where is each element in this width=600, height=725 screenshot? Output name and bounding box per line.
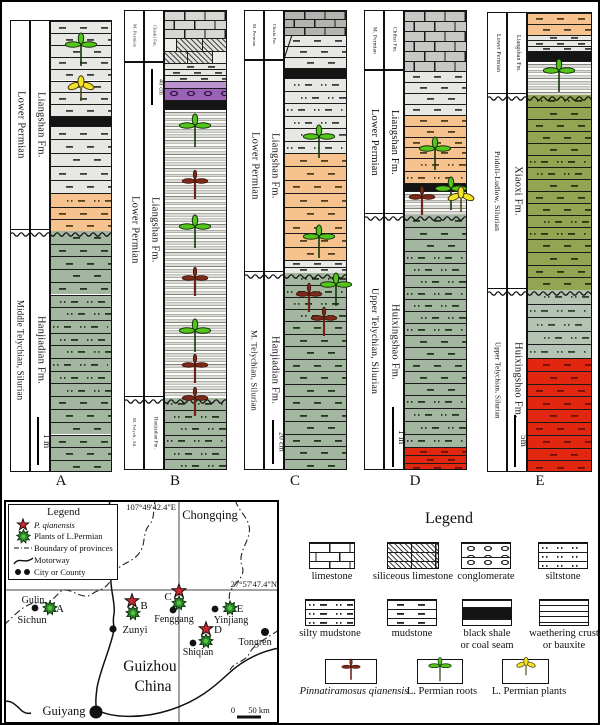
fm-label: Huixingshao Fm.	[389, 304, 400, 380]
layer-graydots	[285, 78, 346, 91]
city-label: Zunyi	[122, 625, 147, 636]
strat-section-age: Lower Permian	[487, 12, 507, 94]
lithology-legend-title: Legend	[409, 510, 489, 528]
legend-layer-siltW	[539, 561, 587, 569]
layer-green	[285, 321, 346, 334]
layer-red	[528, 371, 591, 384]
layer-gray	[51, 180, 111, 193]
layer-red	[528, 396, 591, 409]
layer-graydots	[285, 116, 346, 129]
layer-green	[285, 334, 346, 347]
layer-ruled	[165, 109, 226, 398]
scale-bar	[37, 417, 39, 465]
layer-olive	[528, 131, 591, 143]
legend-layer-siltW	[539, 543, 587, 552]
permian-root-icon	[427, 656, 453, 683]
siliceous-cell	[177, 39, 203, 51]
layer-gray	[51, 21, 111, 33]
age-label: M. Permian	[252, 24, 256, 46]
scale-bar	[514, 415, 516, 467]
strat-section-age: M. Permian	[364, 10, 384, 70]
longitude-label: 107°49'42.4"E	[126, 502, 176, 512]
scale-label-text: 1 m	[397, 430, 406, 444]
legend-layer-whiteL	[463, 619, 511, 626]
layer-green	[285, 459, 346, 471]
layer-green	[51, 447, 111, 460]
layer-red	[405, 455, 466, 463]
layer-greendots	[51, 383, 111, 396]
layer-greendots	[51, 371, 111, 384]
fm-label: Hanjiadian Fm.	[152, 417, 157, 449]
column-letter-D: D	[405, 473, 425, 491]
legend-swatch-silty	[305, 599, 355, 626]
city-label: Tongren	[238, 637, 271, 648]
layer-red	[528, 448, 591, 461]
litho-column-B	[164, 10, 227, 470]
layer-red	[528, 384, 591, 397]
litho-column-C	[284, 10, 347, 470]
fm-label: Chishi Fm.	[272, 24, 276, 45]
layer-black	[165, 100, 226, 109]
layer-limeD	[285, 27, 346, 35]
scale-label: 5m	[517, 415, 530, 467]
layer-green	[405, 359, 466, 371]
layer-greendots	[405, 299, 466, 311]
legend-layer-whiteL	[540, 622, 588, 626]
layer-green	[285, 434, 346, 447]
layer-green	[51, 244, 111, 257]
legend-symbol-plant	[513, 656, 539, 687]
layer-greendots	[405, 275, 466, 287]
layer-orange	[51, 207, 111, 219]
layer-conglo	[165, 88, 226, 100]
layer-red	[405, 463, 466, 470]
layer-orange	[405, 115, 466, 126]
city-label: Guiyang	[42, 704, 86, 718]
legend-layer-silicW	[388, 561, 438, 569]
layer-green	[51, 396, 111, 409]
map-legend-item: Boundary of provinces	[12, 542, 115, 554]
layer-red	[528, 422, 591, 435]
legend-layer-siltymudW	[306, 600, 354, 609]
city-label: Shiqian	[183, 647, 214, 658]
layer-orange	[285, 166, 346, 179]
fm-label: Huixingshao Fm.	[512, 342, 523, 418]
city-dot	[170, 607, 177, 614]
layer-orange	[405, 147, 466, 158]
scale-label-text: 1 m	[42, 434, 51, 448]
strat-section-formation: Chihsi Fm.	[384, 10, 404, 70]
scale-bar	[272, 420, 274, 464]
strat-section-age: M. Telych., Sil.	[124, 397, 144, 470]
layer-orange	[285, 233, 346, 246]
layer-greendots	[405, 251, 466, 263]
age-label: M. Permian	[132, 24, 137, 47]
layer-red	[528, 358, 591, 371]
legend-label-line: siltstone	[501, 571, 600, 583]
layer-olive	[528, 277, 591, 290]
layer-siliceous-limestone	[165, 51, 226, 64]
strat-section-age: Lower Permian	[244, 60, 264, 272]
siliceous-cell	[165, 52, 188, 64]
city-dot	[261, 628, 269, 636]
layer-greendots	[51, 307, 111, 320]
layer-gray	[51, 81, 111, 93]
scale-label: 1 m	[40, 417, 53, 465]
fm-label: Liangshan Fm.	[389, 110, 399, 175]
layer-greendots	[405, 323, 466, 335]
strat-section-formation: Liangshan Fm.	[144, 62, 164, 397]
legend-symbol-box-plant	[502, 659, 549, 684]
map-region-label: Guizhou	[123, 658, 177, 675]
layer-limeM	[405, 61, 466, 71]
layer-black	[405, 183, 466, 191]
legend-swatch-conglomerate	[461, 542, 511, 569]
layer-greendots	[285, 273, 346, 285]
strat-section-age: Middle Telychian, Silurian	[10, 230, 30, 472]
strat-section-formation: Liangshan Fm.	[30, 20, 50, 230]
layer-graydots	[285, 141, 346, 154]
age-label: Lower Permian	[249, 132, 260, 200]
column-letter-A: A	[51, 473, 71, 491]
layer-limeL	[165, 29, 226, 38]
legend-layer-mudW	[388, 600, 436, 609]
strat-section-age: M. Permian	[124, 10, 144, 62]
layer-greendots	[405, 395, 466, 408]
layer-orange	[285, 193, 346, 206]
legend-swatch-siliceous	[387, 542, 439, 569]
legend-label-line: or bauxite	[502, 640, 600, 652]
layer-greendots	[405, 408, 466, 421]
legend-swatch-black	[462, 599, 512, 626]
layer-green	[405, 335, 466, 347]
legend-symbol-pq	[338, 656, 364, 687]
layer-red	[528, 409, 591, 422]
map-legend-items: P. qianensisPlants of L.PermianBoundary …	[12, 519, 115, 578]
pinnatiramosus-icon	[338, 656, 364, 683]
age-label: M. Telychian, Silurian	[250, 330, 259, 411]
layer-olivedots	[528, 227, 591, 239]
city-label: Gulin	[22, 595, 45, 606]
scale-label: 1 m	[395, 407, 408, 467]
layer-greendots	[165, 422, 226, 434]
layer-gray	[285, 35, 346, 46]
layer-greendots	[405, 263, 466, 275]
layer-greendots	[165, 410, 226, 422]
strat-section-formation: Liangshan Fm.	[264, 60, 284, 272]
layer-olivedots	[528, 95, 591, 107]
legend-swatch-siltstone	[538, 542, 588, 569]
layer-greendots	[51, 358, 111, 371]
layer-gray	[51, 45, 111, 57]
litho-column-D	[404, 10, 467, 470]
legend-layer-siltymudW	[306, 618, 354, 626]
layer-orange	[405, 126, 466, 137]
layer-green	[51, 422, 111, 435]
layer-gray	[405, 82, 466, 93]
layer-red	[528, 460, 591, 472]
motorway-icon	[12, 555, 34, 566]
layer-greendots	[285, 309, 346, 321]
legend-symbol-root	[427, 656, 453, 687]
map-scalebar-label: 50 km	[248, 705, 270, 715]
layer-orangedots	[405, 171, 466, 184]
legend-item-label: waethering crustor bauxite	[502, 628, 600, 654]
layer-greendots	[51, 333, 111, 346]
litho-column-E	[527, 12, 592, 472]
figure-root: Legend P. qianensisPlants of L.PermianBo…	[0, 0, 600, 725]
layer-purpleL	[165, 81, 226, 88]
site-label: A	[56, 603, 64, 615]
map-legend-box: Legend P. qianensisPlants of L.PermianBo…	[8, 504, 118, 580]
map-legend-item: Motorway	[12, 554, 115, 566]
siliceous-cell	[213, 52, 226, 64]
city-dot	[109, 625, 116, 632]
scale-bar	[151, 69, 153, 105]
map-region-label: China	[134, 678, 171, 695]
layer-black	[285, 68, 346, 78]
age-label: Lower Permian	[15, 91, 26, 159]
layer-olive	[528, 203, 591, 215]
fm-label: Hanjiadian Fm.	[269, 336, 280, 404]
layer-olivedots	[528, 155, 591, 167]
layer-green	[405, 239, 466, 251]
legend-layer-congloW	[462, 543, 510, 557]
layer-graygreen	[528, 344, 591, 358]
layer-limeM	[405, 11, 466, 21]
age-label: Upper Telychian, Silurian	[369, 288, 379, 394]
layer-limeL	[165, 20, 226, 29]
layer-graygreen	[528, 331, 591, 345]
layer-gray	[51, 57, 111, 69]
layer-gray	[285, 46, 346, 57]
city-label: Fenggang	[154, 614, 193, 625]
map-legend-item-label: P. qianensis	[34, 520, 75, 530]
layer-graygreen	[528, 317, 591, 331]
layer-gray	[51, 126, 111, 139]
scale-label-text: 5m	[519, 435, 528, 447]
site-plant-center	[48, 606, 52, 610]
scale-label-text: 40 cm	[157, 79, 163, 95]
scale-label: 40 cm	[154, 69, 167, 105]
legend-layer-limeW	[310, 543, 354, 552]
layer-limeM	[405, 31, 466, 41]
map-region-label: Chongqing	[182, 508, 238, 522]
layer-limeD	[285, 11, 346, 19]
legend-layer-siltW	[539, 552, 587, 561]
site-plant-center	[131, 611, 135, 615]
site-plant-center	[177, 601, 181, 605]
layer-siliceous-limestone	[165, 38, 226, 51]
layer-olive	[528, 239, 591, 252]
litho-column-A	[50, 20, 112, 472]
fm-label: Chishi Fm.	[152, 25, 157, 47]
layer-greendots	[165, 398, 226, 410]
layer-green	[285, 409, 346, 422]
strat-section-age: M. Permian	[244, 10, 264, 60]
layer-greendots	[165, 459, 226, 470]
layer-greendots	[51, 295, 111, 308]
layer-green	[285, 346, 346, 359]
map-legend-item-label: Motorway	[34, 555, 70, 565]
strat-section-formation: Hanjiadian Fm.	[144, 397, 164, 470]
map-scalebar-zero: 0	[231, 705, 235, 715]
plant-icon	[12, 529, 34, 544]
legend-layer-whiteL	[463, 600, 511, 607]
layer-gray	[51, 69, 111, 81]
map-legend-title: Legend	[12, 506, 115, 519]
layer-greendots	[285, 285, 346, 297]
legend-swatch-waethering	[539, 599, 589, 626]
layer-orange	[51, 219, 111, 231]
layer-graygreen	[528, 304, 591, 318]
layer-orange	[285, 180, 346, 193]
layer-greendots	[405, 287, 466, 299]
siliceous-cell	[188, 52, 212, 64]
fm-label: Chihsi Fm.	[391, 27, 396, 52]
layer-green	[285, 421, 346, 434]
permian-plant-icon	[513, 656, 539, 683]
layer-green	[285, 359, 346, 372]
strat-section-formation: Liangshan Fm.	[384, 70, 404, 214]
site-label: C	[164, 591, 171, 603]
layer-green	[51, 282, 111, 295]
map-legend-item-label: City or County	[34, 567, 86, 577]
legend-layer-silicW	[388, 552, 438, 561]
strat-section-formation: Chishi Fm.	[144, 10, 164, 62]
layer-green	[405, 347, 466, 359]
city-dot	[190, 640, 197, 647]
city-dot	[90, 706, 103, 719]
layer-green	[51, 409, 111, 422]
layer-black	[51, 116, 111, 126]
layer-red	[405, 447, 466, 455]
layer-green	[405, 215, 466, 227]
layer-limeD	[285, 19, 346, 27]
siliceous-cell	[203, 39, 226, 51]
layer-orange	[285, 153, 346, 166]
layer-greendots	[405, 421, 466, 434]
legend-layer-limeW	[310, 561, 354, 569]
layer-gray	[51, 104, 111, 116]
legend-layer-silicW	[388, 543, 438, 552]
strat-section-formation: Liangshan Fm.	[507, 12, 527, 94]
fm-label: Hanjiadian Fm.	[35, 316, 46, 384]
layer-graygreen	[528, 290, 591, 304]
layer-orangedots	[405, 158, 466, 171]
layer-ruled	[528, 61, 591, 95]
legend-layer-blackL	[463, 607, 511, 619]
legend-layer-congloW	[462, 557, 510, 570]
layer-gray	[285, 57, 346, 68]
layer-olive	[528, 119, 591, 131]
site-label: D	[214, 624, 222, 636]
layer-orange	[285, 220, 346, 233]
layer-gray	[405, 93, 466, 104]
fm-label: Liangshan Fm.	[269, 133, 280, 199]
strat-section-age: Lower Permian	[10, 20, 30, 230]
layer-green	[51, 231, 111, 244]
site-plant-center	[228, 606, 232, 610]
siliceous-cell	[165, 39, 177, 51]
column-letter-E: E	[530, 473, 550, 491]
layer-gray	[405, 104, 466, 115]
scale-label-text: 20 cm	[278, 432, 286, 452]
layer-greendots	[51, 345, 111, 358]
layer-green	[405, 227, 466, 239]
fm-label: Liangshan Fm.	[514, 35, 520, 72]
legend-item-label: L. Permian plants	[467, 686, 591, 700]
layer-olivedots	[528, 167, 591, 179]
layer-gray	[51, 153, 111, 166]
map-legend-item-label: Plants of L.Permian	[34, 531, 103, 541]
layer-gray	[405, 71, 466, 82]
layer-greendots	[285, 297, 346, 309]
layer-limeL	[165, 11, 226, 20]
layer-orange	[528, 13, 591, 24]
strat-section-age: M. Telychian, Silurian	[244, 272, 264, 470]
layer-greendots	[165, 435, 226, 447]
fm-label: Xiaoxi Fm.	[512, 166, 523, 216]
layer-olive	[528, 179, 591, 191]
layer-greendots	[405, 311, 466, 323]
age-label: Lower Permian	[369, 109, 379, 176]
column-letter-B: B	[165, 473, 185, 491]
layer-gray	[51, 166, 111, 179]
layer-green	[51, 269, 111, 282]
layer-green	[285, 446, 346, 459]
latitude-label: 27°57'47.4"N	[231, 579, 277, 589]
layer-red	[528, 435, 591, 448]
strat-section-age: Lower Permian	[124, 62, 144, 397]
legend-symbol-box-root	[417, 659, 463, 684]
layer-olive	[528, 252, 591, 265]
layer-olive	[528, 143, 591, 155]
layer-green	[405, 383, 466, 395]
layer-orange	[285, 247, 346, 260]
strat-section-age: Lower Permian	[364, 70, 384, 214]
fm-label: Liangshan Fm.	[149, 197, 160, 263]
fm-label: Liangshan Fm.	[35, 92, 46, 158]
age-label: Middle Telychian, Silurian	[16, 300, 25, 400]
motorway-line	[96, 500, 279, 716]
layer-orange	[528, 24, 591, 35]
map-legend-item: Plants of L.Permian	[12, 531, 115, 543]
layer-olive	[528, 265, 591, 278]
age-label: M. Telych., Sil.	[132, 418, 136, 448]
legend-swatch-mudstone	[387, 599, 437, 626]
map-region-label: Sichun	[17, 615, 47, 626]
legend-layer-siltymudW	[306, 609, 354, 618]
layer-orange	[405, 137, 466, 148]
layer-graydots	[285, 103, 346, 116]
layer-ruled	[405, 191, 466, 215]
age-label: Lower Permian	[129, 196, 140, 264]
map-legend-item: City or County	[12, 566, 115, 578]
strat-section-formation: Xiaoxi Fm.	[507, 94, 527, 289]
legend-item-label: siltstone	[501, 571, 600, 585]
layer-orange	[285, 207, 346, 220]
age-label: Upper Telychian, Silurian	[494, 342, 501, 419]
layer-gray	[51, 92, 111, 104]
layer-limeM	[405, 41, 466, 51]
city-icon	[12, 568, 34, 576]
legend-layer-mudW	[388, 609, 436, 618]
strat-section-age: Upper Telychian, Silurian	[487, 289, 507, 472]
layer-greendots	[405, 434, 466, 447]
layer-olivedots	[528, 215, 591, 227]
layer-green	[285, 371, 346, 384]
